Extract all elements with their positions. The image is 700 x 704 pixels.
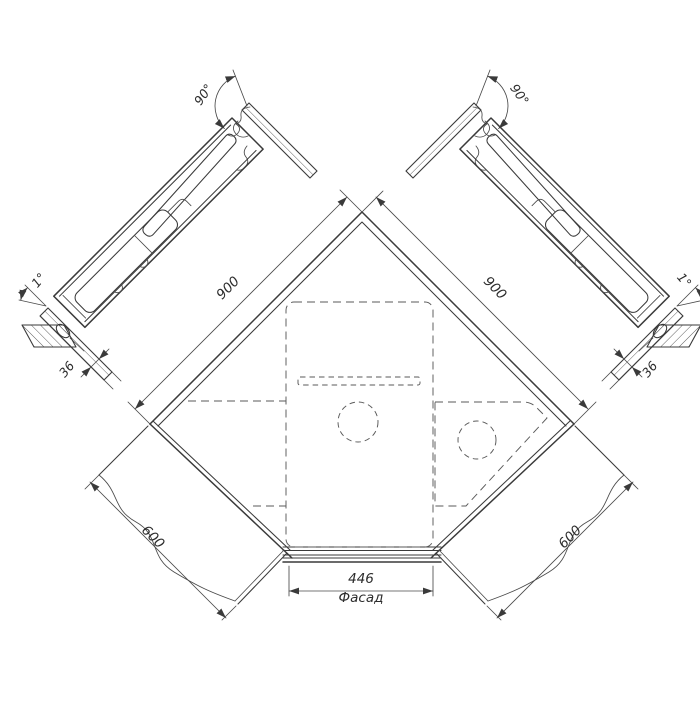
label-facade-caption: Фасад — [339, 590, 384, 606]
technical-drawing-canvas: 900 900 600 600 446 Фасад 90° 90° 1° 1° … — [0, 0, 700, 700]
label-446-facade-width: 446 — [348, 571, 374, 587]
drawing-page: 900 900 600 600 446 Фасад 90° 90° 1° 1° … — [0, 0, 700, 700]
